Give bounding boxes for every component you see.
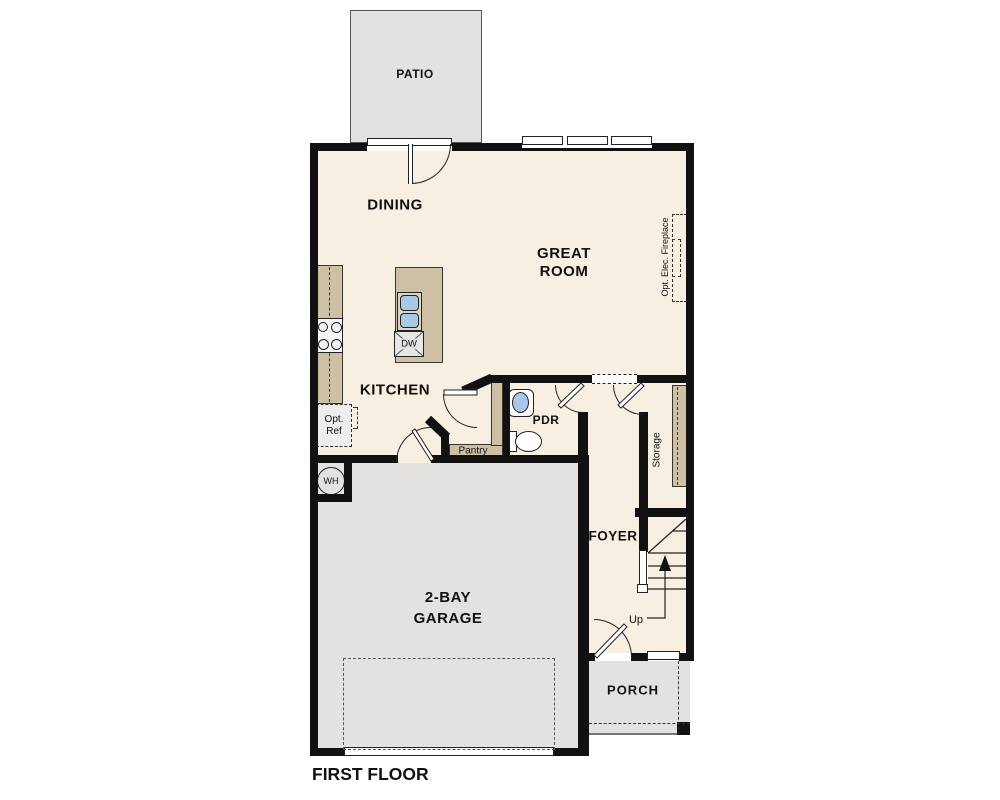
wall-pantry-west	[441, 433, 449, 463]
wall-top-left	[310, 143, 367, 151]
pdr-label: PDR	[533, 413, 560, 427]
great-room-label-1: GREAT	[537, 245, 591, 263]
burner-icon	[318, 322, 328, 332]
pdr-sink-bowl	[512, 392, 529, 413]
toilet-bowl	[515, 431, 542, 452]
sink-basin	[400, 295, 419, 311]
stair-rail-post	[637, 584, 648, 593]
window	[522, 136, 563, 145]
wall-kitchen-south-right	[431, 455, 589, 463]
front-window	[647, 651, 680, 660]
patio-door-leaf	[408, 144, 413, 184]
water-heater-label: WH	[324, 476, 339, 486]
water-heater: WH	[317, 467, 345, 495]
wall-left	[310, 143, 318, 756]
great-room-label-2: ROOM	[537, 263, 591, 281]
wall-garage-east	[578, 455, 589, 756]
wall-storage-west	[639, 412, 648, 552]
up-label: Up	[629, 614, 643, 626]
wall-greatroom-south-1	[488, 375, 592, 383]
optional-fireplace-label: Opt. Elec. Fireplace	[660, 217, 670, 296]
patio-label: PATIO	[396, 67, 433, 81]
wall-right	[686, 143, 694, 661]
burner-icon	[331, 339, 342, 350]
floor-plan: Opt. Ref WH	[0, 0, 1000, 800]
optional-refrigerator: Opt. Ref	[316, 404, 352, 447]
kitchen-label: KITCHEN	[360, 382, 430, 399]
wall-greatroom-south-2	[637, 375, 686, 383]
garage-apron-outline	[343, 658, 555, 750]
window	[567, 136, 608, 145]
wall-top-mid	[452, 143, 522, 151]
pantry-shelf-east	[491, 378, 503, 446]
opt-ref-label-2: Ref	[326, 426, 342, 438]
dining-label: DINING	[367, 197, 423, 214]
wall-pdr-east	[578, 412, 588, 463]
wall-under-windows	[522, 148, 652, 151]
optional-fireplace-insert	[672, 239, 681, 277]
pantry-label: Pantry	[459, 446, 488, 457]
porch-label: PORCH	[607, 683, 659, 698]
garage-label-1: 2-BAY	[414, 587, 483, 608]
porch-edge-dash-h	[589, 723, 690, 724]
great-room-label: GREAT ROOM	[537, 245, 591, 281]
sink-basin	[400, 313, 419, 328]
burner-icon	[331, 322, 342, 333]
wall-front-2	[631, 653, 648, 661]
wall-wh-stub	[344, 463, 352, 498]
cased-opening	[592, 374, 637, 384]
foyer-label: FOYER	[588, 529, 637, 544]
window	[611, 136, 652, 145]
wall-front-1	[580, 653, 595, 661]
plan-title: FIRST FLOOR	[312, 764, 429, 785]
wall-storage-south	[635, 508, 694, 517]
stairs-floor	[648, 516, 686, 653]
wall-kitchen-south-left	[310, 455, 398, 463]
garage-label-2: GARAGE	[414, 608, 483, 629]
wall-front-3	[679, 653, 694, 661]
storage-shelf-line	[677, 387, 678, 485]
dishwasher-label: DW	[400, 339, 418, 350]
opt-ref-label-1: Opt.	[325, 414, 344, 426]
wall-pdr-west	[503, 375, 510, 463]
burner-icon	[318, 339, 329, 350]
garage-label: 2-BAY GARAGE	[414, 587, 483, 629]
opt-ref-nub	[353, 407, 358, 429]
storage-label: Storage	[652, 432, 663, 467]
